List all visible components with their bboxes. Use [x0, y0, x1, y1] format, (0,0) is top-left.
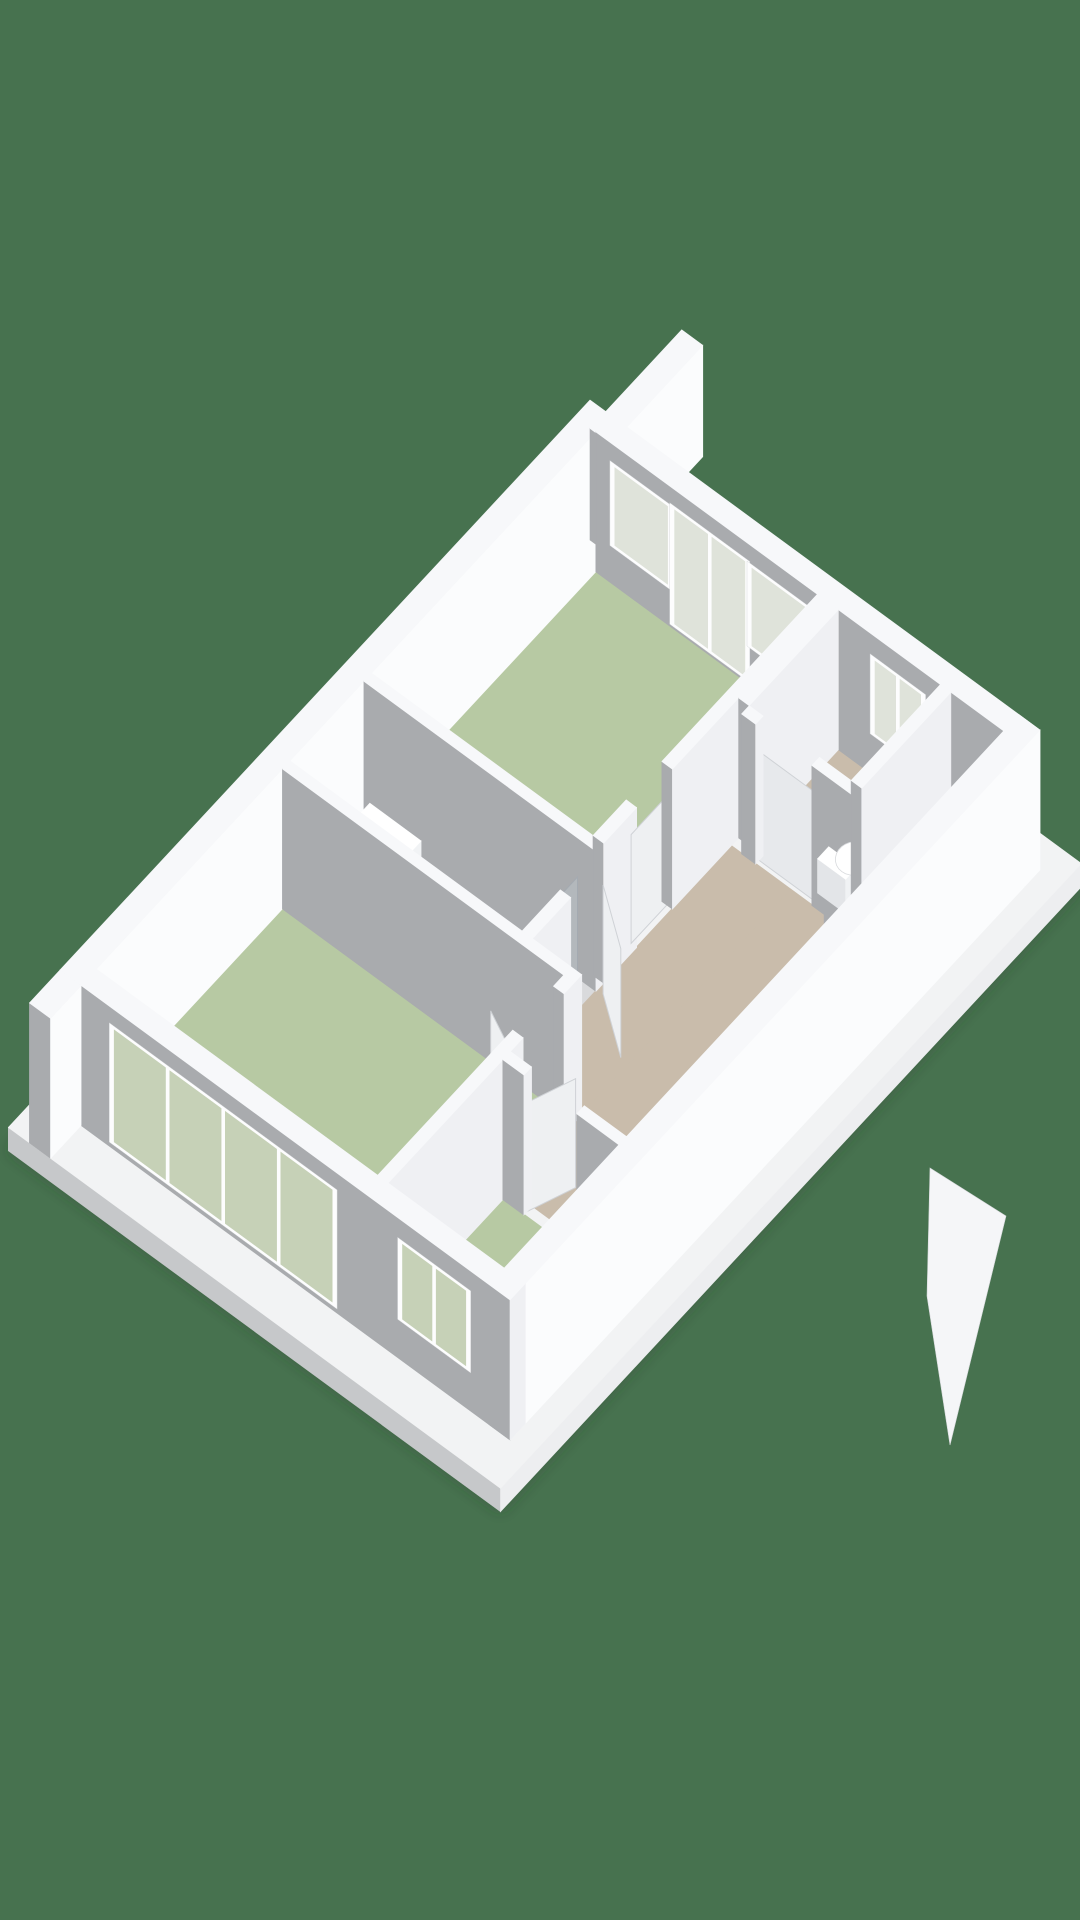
wall-living-se-1-sw-face [593, 836, 604, 984]
wall-living-se-2-sw-face [662, 762, 673, 910]
wall-sw-se-face [510, 1284, 525, 1441]
floorplan-3d-render [0, 0, 1080, 1920]
entry-door-open [927, 1168, 1006, 1445]
wall-wc-sw-1-se-face [756, 716, 764, 864]
wall-wc-sw-1-sw-face [742, 714, 756, 864]
wall-bedroom-small-ne-1-sw-face [503, 1060, 524, 1215]
door-living-balcony-glass-pane [675, 510, 708, 648]
floorplan-canvas [0, 0, 1080, 1920]
wall-sw-stub-sw-face [29, 1003, 50, 1159]
door-living-balcony-glass-pane [712, 537, 745, 675]
wall-bedroom-small-ne-1-se-face [524, 1067, 532, 1215]
door-bedroom-small-leaf [528, 1079, 576, 1212]
